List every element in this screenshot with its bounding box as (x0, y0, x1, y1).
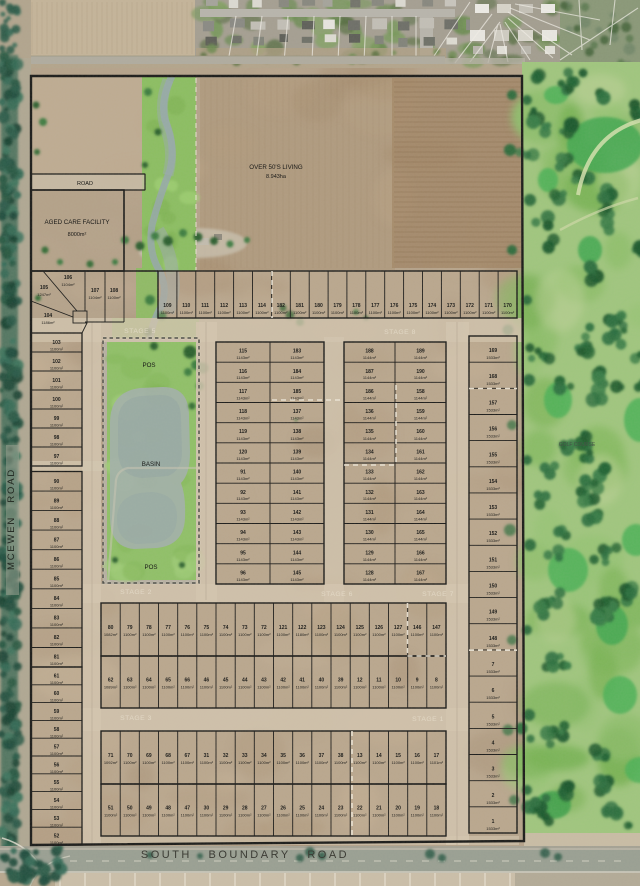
svg-text:ROAD: ROAD (77, 181, 93, 187)
svg-text:STAGE 3: STAGE 3 (120, 715, 152, 722)
svg-text:STAGE 5: STAGE 5 (124, 328, 156, 335)
svg-text:AGED CARE FACILITY: AGED CARE FACILITY (45, 219, 110, 226)
svg-text:OVER 50'S LIVING: OVER 50'S LIVING (249, 164, 303, 171)
svg-text:MCEWEN ROAD: MCEWEN ROAD (6, 468, 17, 570)
svg-text:STAGE 1: STAGE 1 (412, 716, 444, 723)
svg-text:GOLF COURSE: GOLF COURSE (559, 442, 596, 448)
svg-text:STAGE 8: STAGE 8 (384, 329, 416, 336)
svg-text:STAGE 6: STAGE 6 (321, 591, 353, 598)
svg-text:STAGE 7: STAGE 7 (422, 591, 454, 598)
svg-text:SOUTH BOUNDARY ROAD: SOUTH BOUNDARY ROAD (141, 849, 349, 861)
svg-text:8000m²: 8000m² (68, 232, 87, 238)
svg-text:BASIN: BASIN (142, 461, 161, 468)
svg-text:POS: POS (144, 564, 157, 571)
svg-text:STAGE 2: STAGE 2 (120, 589, 152, 596)
svg-text:8.943ha: 8.943ha (266, 174, 287, 180)
svg-text:POS: POS (142, 362, 155, 369)
